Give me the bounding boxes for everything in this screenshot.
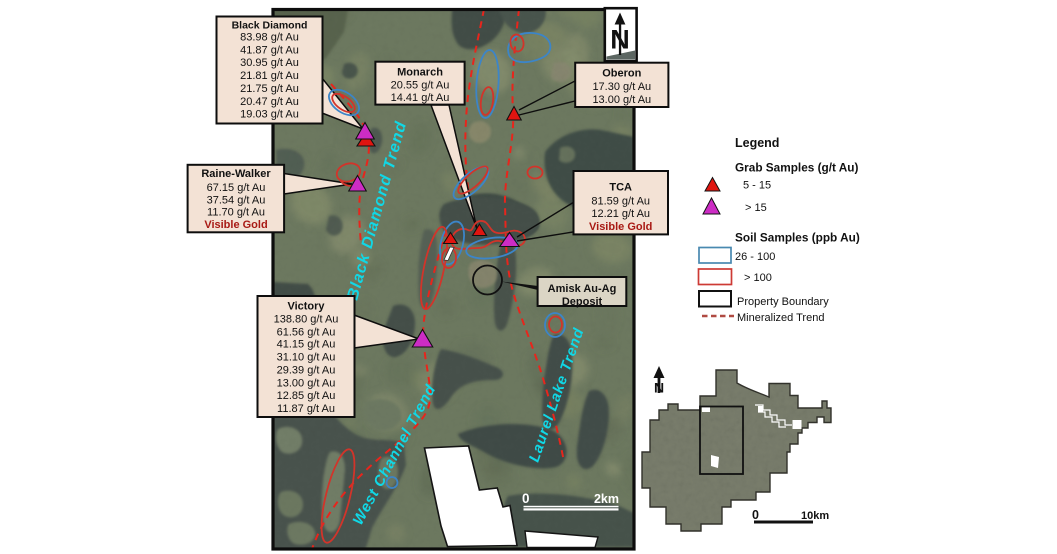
svg-text:31.10 g/t Au: 31.10 g/t Au bbox=[277, 351, 336, 363]
svg-text:13.00 g/t Au: 13.00 g/t Au bbox=[277, 377, 336, 389]
svg-text:11.70 g/t Au: 11.70 g/t Au bbox=[207, 207, 265, 219]
svg-text:2km: 2km bbox=[594, 492, 619, 506]
svg-text:Soil Samples (ppb Au): Soil Samples (ppb Au) bbox=[735, 231, 860, 245]
svg-text:5 - 15: 5 - 15 bbox=[743, 180, 771, 192]
svg-text:N: N bbox=[654, 380, 664, 396]
svg-text:21.75 g/t Au: 21.75 g/t Au bbox=[240, 83, 299, 95]
svg-text:61.56 g/t Au: 61.56 g/t Au bbox=[277, 326, 336, 338]
svg-text:29.39 g/t Au: 29.39 g/t Au bbox=[277, 364, 336, 376]
svg-text:Visible Gold: Visible Gold bbox=[204, 219, 267, 231]
svg-text:17.30 g/t Au: 17.30 g/t Au bbox=[592, 81, 651, 93]
svg-text:> 100: > 100 bbox=[744, 272, 772, 284]
svg-text:TCA: TCA bbox=[609, 182, 632, 194]
svg-text:138.80 g/t Au: 138.80 g/t Au bbox=[274, 313, 339, 325]
svg-text:81.59 g/t Au: 81.59 g/t Au bbox=[591, 196, 650, 208]
svg-text:67.15 g/t Au: 67.15 g/t Au bbox=[207, 182, 266, 194]
svg-text:20.55 g/t Au: 20.55 g/t Au bbox=[391, 80, 450, 92]
svg-text:Amisk Au-Ag: Amisk Au-Ag bbox=[548, 283, 617, 295]
svg-text:19.03 g/t Au: 19.03 g/t Au bbox=[240, 109, 299, 121]
svg-text:Victory: Victory bbox=[287, 301, 325, 313]
svg-text:Black Diamond: Black Diamond bbox=[232, 19, 308, 31]
svg-text:13.00 g/t Au: 13.00 g/t Au bbox=[592, 94, 651, 106]
svg-text:Legend: Legend bbox=[735, 136, 779, 150]
svg-text:41.87 g/t Au: 41.87 g/t Au bbox=[240, 44, 299, 56]
svg-text:Visible Gold: Visible Gold bbox=[589, 221, 652, 233]
svg-text:0: 0 bbox=[522, 491, 530, 506]
svg-text:Monarch: Monarch bbox=[397, 67, 443, 79]
svg-text:10km: 10km bbox=[801, 510, 829, 522]
svg-text:14.41 g/t Au: 14.41 g/t Au bbox=[391, 92, 450, 104]
svg-text:N: N bbox=[610, 25, 630, 55]
svg-text:20.47 g/t Au: 20.47 g/t Au bbox=[240, 96, 299, 108]
svg-text:0: 0 bbox=[752, 508, 759, 522]
svg-text:Deposit: Deposit bbox=[562, 296, 603, 308]
svg-text:Property Boundary: Property Boundary bbox=[737, 296, 829, 308]
svg-text:83.98 g/t Au: 83.98 g/t Au bbox=[240, 32, 299, 44]
svg-text:30.95 g/t Au: 30.95 g/t Au bbox=[240, 57, 299, 69]
svg-text:12.21 g/t Au: 12.21 g/t Au bbox=[591, 208, 650, 220]
svg-text:12.85 g/t Au: 12.85 g/t Au bbox=[277, 390, 336, 402]
svg-text:Oberon: Oberon bbox=[602, 68, 641, 80]
svg-text:26 - 100: 26 - 100 bbox=[735, 251, 775, 263]
svg-text:Mineralized Trend: Mineralized Trend bbox=[737, 312, 824, 324]
svg-text:Raine-Walker: Raine-Walker bbox=[201, 168, 271, 180]
svg-text:> 15: > 15 bbox=[745, 202, 767, 214]
svg-text:Grab Samples (g/t Au): Grab Samples (g/t Au) bbox=[735, 161, 859, 175]
svg-text:21.81 g/t Au: 21.81 g/t Au bbox=[240, 70, 299, 82]
svg-text:11.87 g/t Au: 11.87 g/t Au bbox=[277, 403, 335, 415]
svg-text:37.54 g/t Au: 37.54 g/t Au bbox=[207, 195, 266, 207]
svg-text:41.15 g/t Au: 41.15 g/t Au bbox=[277, 339, 336, 351]
